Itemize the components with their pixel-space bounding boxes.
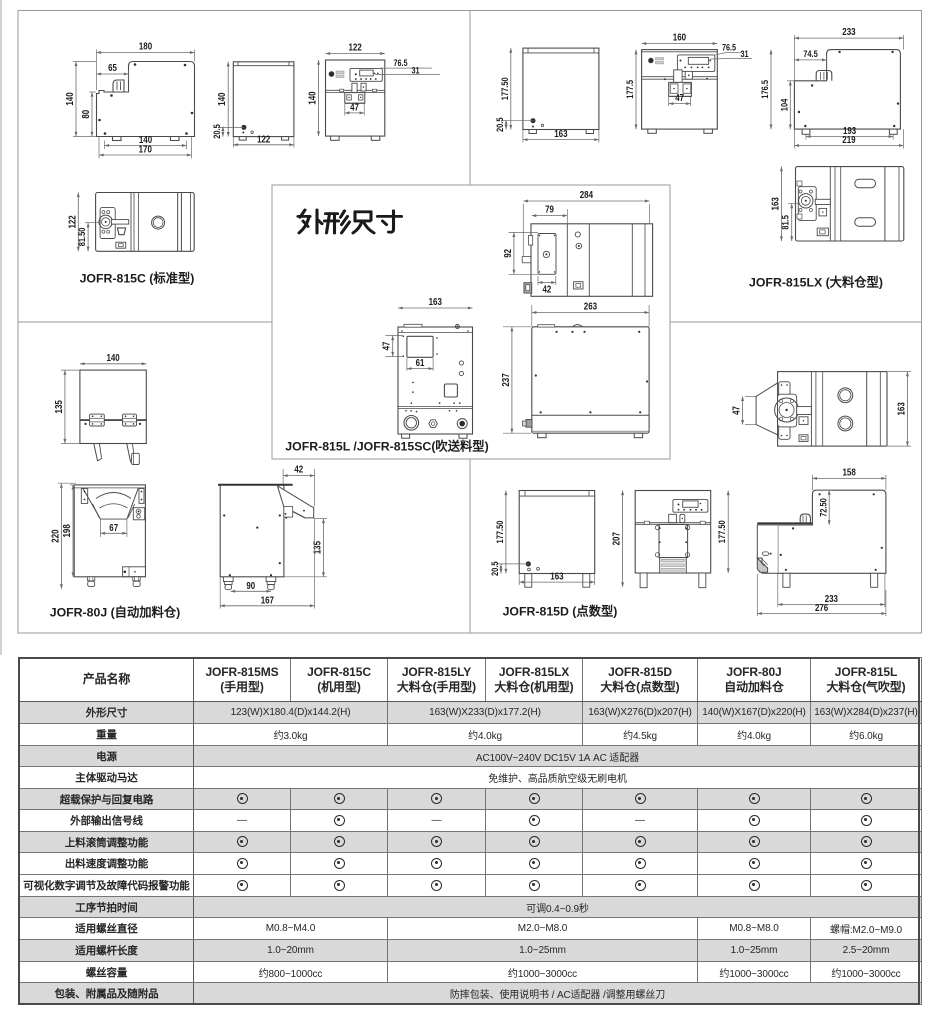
svg-text:122: 122 (349, 43, 363, 54)
svg-text:220: 220 (50, 529, 61, 543)
svg-text:72.50: 72.50 (819, 498, 830, 517)
svg-text:140: 140 (106, 353, 120, 364)
svg-text:177.50: 177.50 (717, 520, 728, 543)
svg-text:140: 140 (308, 91, 319, 105)
svg-text:176.5: 176.5 (760, 79, 771, 98)
svg-text:JOFR-815LX (大料仓型): JOFR-815LX (大料仓型) (749, 275, 883, 290)
svg-text:20.5: 20.5 (490, 561, 501, 576)
svg-text:160: 160 (673, 33, 687, 44)
svg-text:65: 65 (108, 63, 117, 74)
svg-text:74.5: 74.5 (803, 49, 818, 60)
svg-text:237: 237 (501, 373, 512, 387)
svg-text:122: 122 (67, 215, 78, 229)
svg-text:170: 170 (139, 145, 153, 156)
svg-text:20.5: 20.5 (495, 117, 506, 132)
svg-text:233: 233 (842, 27, 856, 38)
svg-text:42: 42 (543, 285, 552, 296)
svg-text:163: 163 (770, 197, 781, 211)
svg-text:140: 140 (65, 92, 76, 106)
svg-text:76.5: 76.5 (393, 58, 407, 68)
svg-text:81.50: 81.50 (77, 228, 88, 247)
svg-text:JOFR-815C (标准型): JOFR-815C (标准型) (80, 271, 195, 286)
svg-text:284: 284 (580, 190, 594, 201)
svg-text:47: 47 (382, 341, 393, 350)
svg-text:263: 263 (584, 302, 598, 313)
svg-text:135: 135 (54, 400, 65, 414)
svg-text:42: 42 (294, 465, 303, 476)
svg-text:163: 163 (429, 297, 443, 308)
svg-text:198: 198 (62, 524, 73, 538)
svg-text:JOFR-80J (自动加料仓): JOFR-80J (自动加料仓) (50, 605, 181, 620)
svg-text:76.5: 76.5 (722, 43, 736, 53)
svg-text:80: 80 (81, 110, 92, 119)
svg-text:JOFR-815L /JOFR-815SC(吹送料型): JOFR-815L /JOFR-815SC(吹送料型) (285, 439, 488, 454)
svg-text:180: 180 (139, 42, 153, 53)
svg-text:90: 90 (246, 581, 255, 592)
svg-text:79: 79 (545, 205, 554, 216)
svg-text:47: 47 (732, 406, 743, 415)
svg-text:81.5: 81.5 (781, 215, 792, 230)
svg-text:276: 276 (815, 603, 829, 614)
svg-text:163: 163 (896, 402, 907, 416)
svg-text:104: 104 (779, 98, 790, 111)
svg-text:31: 31 (411, 66, 419, 76)
svg-text:177.50: 177.50 (500, 77, 511, 100)
svg-text:JOFR-815D (点数型): JOFR-815D (点数型) (503, 604, 618, 619)
svg-text:219: 219 (842, 135, 856, 146)
svg-text:31: 31 (740, 49, 748, 59)
svg-text:177.5: 177.5 (625, 79, 636, 98)
svg-text:47: 47 (675, 93, 684, 104)
svg-text:122: 122 (257, 134, 271, 145)
svg-text:163: 163 (550, 572, 564, 583)
svg-text:140: 140 (217, 92, 228, 106)
svg-text:163: 163 (554, 129, 568, 140)
svg-text:158: 158 (843, 467, 857, 478)
svg-text:20.5: 20.5 (212, 124, 223, 139)
svg-text:135: 135 (312, 541, 323, 555)
svg-text:61: 61 (416, 358, 425, 369)
svg-text:177.50: 177.50 (495, 521, 506, 544)
svg-text:67: 67 (109, 523, 118, 534)
svg-text:207: 207 (612, 532, 623, 546)
svg-text:167: 167 (261, 595, 275, 606)
svg-text:47: 47 (350, 102, 359, 113)
svg-text:92: 92 (503, 249, 514, 258)
